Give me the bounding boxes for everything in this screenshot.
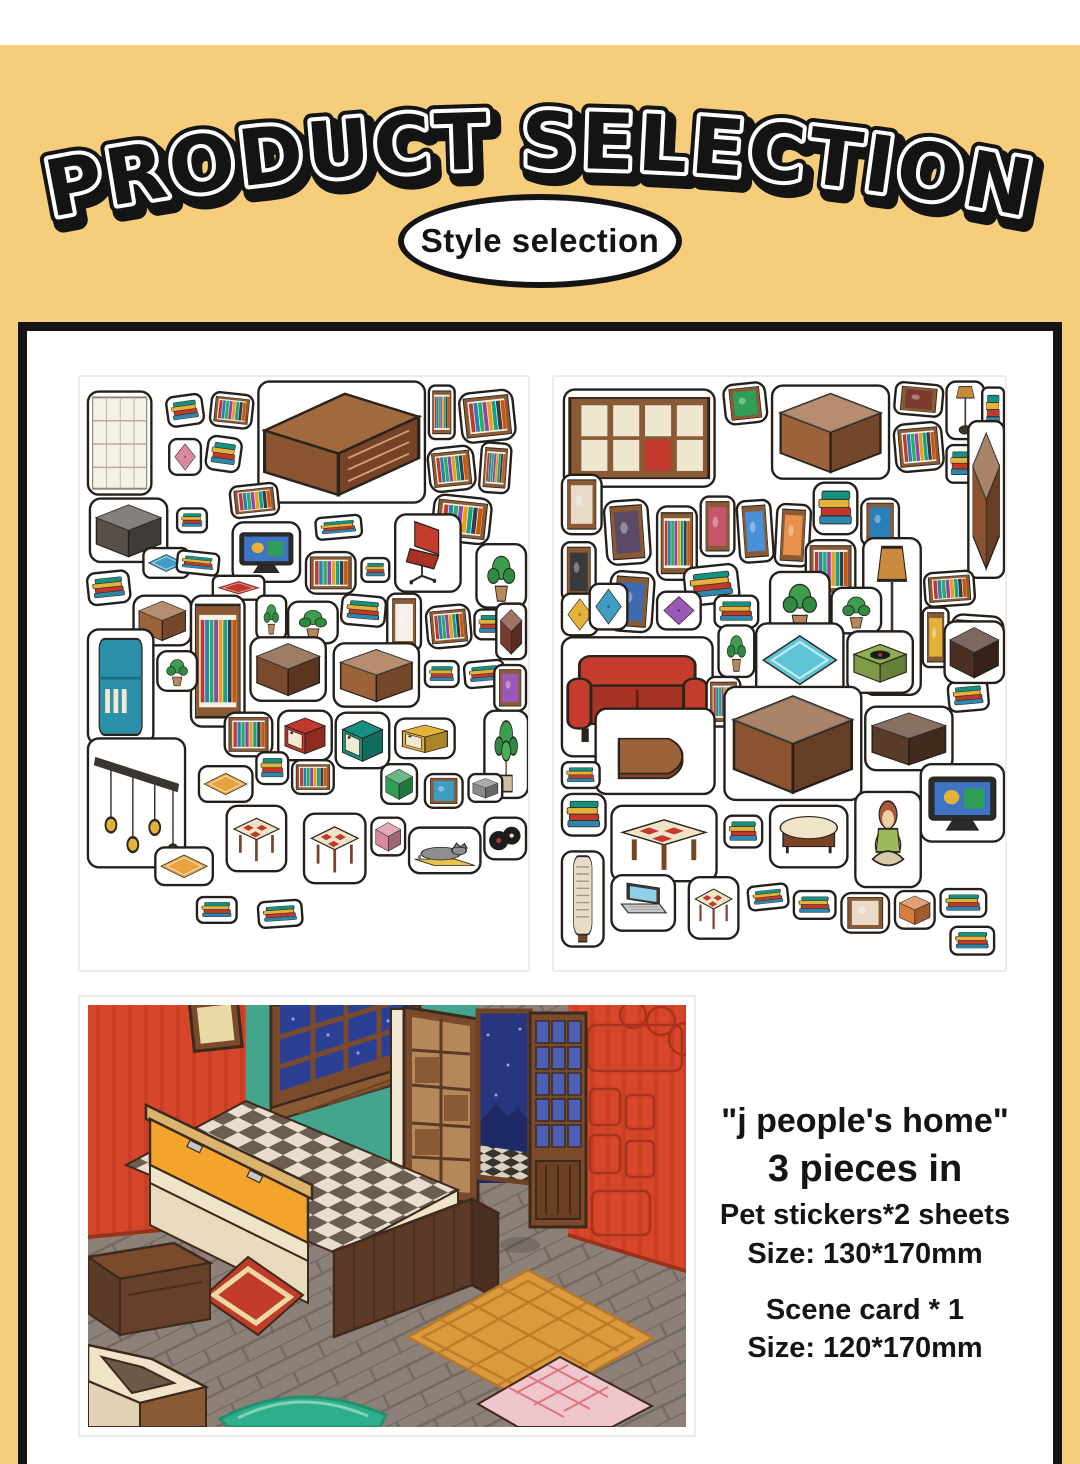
sticker-box (724, 687, 861, 800)
sticker-stack (947, 679, 989, 712)
sticker-books (429, 386, 455, 440)
sticker-plant (157, 651, 197, 691)
scene-shadow (500, 1237, 540, 1253)
sticker-books (425, 604, 472, 649)
sticker-stack (715, 596, 759, 628)
sticker-frame (603, 499, 651, 565)
sticker-plant (476, 544, 526, 607)
product-specs: "j people's home" 3 pieces in Pet sticke… (677, 1099, 1053, 1367)
sticker-stack (256, 752, 288, 784)
sticker-stack (205, 435, 243, 473)
sticker-stack (562, 794, 606, 836)
sticker-sheet-1 (78, 375, 530, 972)
scene-desk (88, 1243, 210, 1335)
sticker-stack (258, 899, 303, 928)
sticker-sheet-2 (552, 375, 1007, 972)
sticker-stack (177, 508, 207, 532)
sticker-stack (86, 570, 131, 606)
sticker-box (772, 386, 889, 479)
sticker-stack (176, 550, 220, 576)
sticker-box (968, 421, 1004, 578)
scene-count-line: Scene card * 1 (677, 1291, 1053, 1329)
sticker-books (209, 391, 254, 429)
sticker-size-line: Size: 130*170mm (677, 1235, 1053, 1273)
sticker-appliance (395, 719, 454, 759)
content-panel: "j people's home" 3 pieces in Pet sticke… (18, 322, 1062, 1464)
sticker-stack (941, 889, 987, 917)
style-selection-badge: Style selection (398, 194, 682, 288)
sticker-stack (315, 514, 362, 540)
sticker-tv (233, 522, 300, 581)
scene-doorway (478, 1011, 530, 1183)
sticker-stool (227, 806, 286, 871)
sticker-books (893, 421, 945, 473)
sticker-ovaltable (596, 709, 715, 794)
sticker-books (225, 713, 273, 757)
sticker-box (496, 604, 526, 660)
sticker-stack (747, 883, 789, 911)
sticker-box (371, 818, 405, 856)
scene-picture-frame (189, 1005, 242, 1051)
sticker-books (292, 760, 334, 794)
sticker-frame (736, 499, 774, 563)
sticker-cat (409, 828, 480, 874)
sticker-box (334, 643, 419, 706)
sticker-window (564, 390, 715, 487)
scene-card-image (88, 1005, 686, 1427)
sticker-stack (950, 927, 994, 955)
sticker-books (229, 482, 280, 519)
sticker-books (427, 445, 477, 493)
sticker-stack (562, 762, 600, 788)
sticker-box (895, 891, 935, 929)
sticker-tv (921, 764, 1004, 841)
sticker-books (458, 389, 516, 444)
sticker-desk (258, 382, 425, 503)
sticker-rug (199, 766, 253, 802)
sticker-frame (494, 665, 526, 711)
sticker-frame (841, 893, 889, 933)
sticker-stack (340, 594, 386, 627)
product-name-line: "j people's home" (677, 1099, 1053, 1143)
sticker-books (191, 596, 245, 727)
sticker-stack (724, 816, 762, 848)
sticker-pillow (657, 592, 701, 630)
sticker-frame (562, 475, 602, 534)
sticker-stack (425, 661, 459, 687)
sticker-frame (701, 497, 735, 556)
style-selection-label: Style selection (421, 222, 660, 260)
scene-size-line: Size: 120*170mm (677, 1329, 1053, 1367)
sticker-recordplayer (847, 631, 912, 692)
sticker-frame (425, 774, 463, 808)
sticker-box (250, 637, 325, 700)
sticker-plant (256, 596, 286, 640)
sticker-stool (611, 806, 716, 881)
scene-card (78, 995, 696, 1437)
sticker-chair (395, 514, 460, 591)
sticker-box (945, 621, 1004, 682)
sticker-girl (855, 792, 920, 887)
sticker-box (469, 774, 503, 802)
sticker-plant (719, 625, 755, 677)
sticker-stack (197, 897, 237, 923)
sticker-rug (155, 847, 212, 885)
sticker-pillow (169, 439, 201, 475)
sticker-box (381, 764, 417, 804)
sticker-laptop (611, 875, 674, 931)
sticker-pillow (590, 584, 628, 630)
sticker-box (865, 707, 952, 770)
sticker-fridge (88, 629, 153, 744)
sticker-books (306, 552, 356, 594)
sticker-stack (165, 393, 204, 427)
sticker-stool (689, 877, 739, 938)
sticker-stack (814, 483, 858, 535)
scene-door (530, 1013, 586, 1227)
sticker-gridpanel (88, 392, 151, 495)
sticker-appliance (278, 711, 332, 761)
sticker-fan (562, 851, 604, 946)
sticker-books (924, 570, 976, 607)
sticker-books (479, 442, 512, 494)
sticker-count-line: Pet stickers*2 sheets (677, 1195, 1053, 1235)
sticker-stack (794, 891, 836, 919)
pieces-line: 3 pieces in (677, 1143, 1053, 1195)
sticker-frame (723, 382, 769, 426)
sticker-appliance (336, 713, 390, 769)
top-white-strip (0, 0, 1080, 45)
sticker-ottoman (770, 806, 847, 867)
sticker-stool (304, 814, 365, 883)
sticker-vinyl (484, 818, 526, 860)
sticker-frame (894, 382, 944, 418)
sticker-stack (361, 558, 389, 582)
